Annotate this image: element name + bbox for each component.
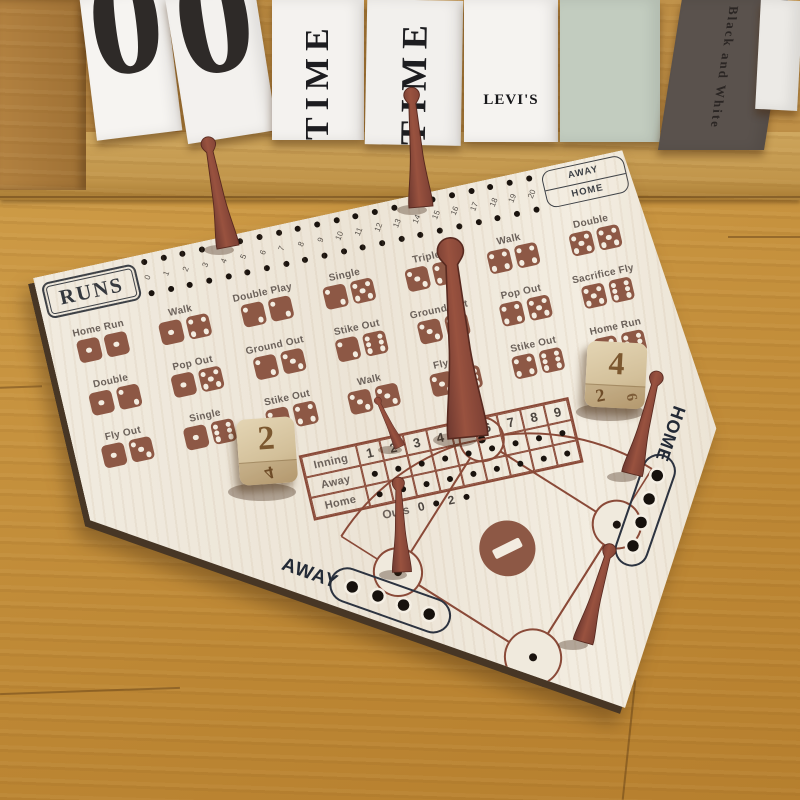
baseball-dice-board: AWAY HOME RUNS 0 1 2 3 4 5 — [33, 142, 786, 800]
die-icon — [103, 331, 131, 358]
die-icon — [373, 382, 401, 409]
die-icon — [416, 318, 444, 345]
die-icon — [321, 283, 349, 310]
die-icon — [197, 365, 225, 392]
die-icon — [607, 276, 635, 303]
die-top-face: 4 — [586, 340, 648, 386]
score-card-digit: 0 — [165, 0, 273, 116]
die-icon — [75, 337, 103, 364]
die-icon — [510, 353, 538, 380]
die-icon — [182, 424, 210, 451]
die-icon — [185, 313, 213, 340]
wood-post — [0, 0, 86, 190]
die-icon — [361, 330, 389, 357]
book-white-partial — [755, 0, 800, 111]
die-icon — [127, 436, 155, 463]
die-icon — [239, 301, 267, 328]
die-icon — [346, 388, 374, 415]
die-icon — [349, 277, 377, 304]
die-icon — [100, 442, 128, 469]
die-icon — [403, 265, 431, 292]
score-card-digit: 0 — [80, 0, 179, 113]
outs-number: 2 — [446, 493, 456, 508]
die-front-face: 4 — [262, 462, 275, 484]
die-icon — [580, 282, 608, 309]
die-side-face: 6 — [621, 392, 639, 403]
book-spine-title: Black and White — [703, 6, 742, 150]
plank-seam — [728, 236, 800, 238]
die-icon — [279, 348, 307, 375]
die-icon — [115, 383, 143, 410]
book-spine-title: TIME — [299, 4, 337, 140]
photo-scene: 0 0 TIME TIME LEVI'S Black and White — [0, 0, 800, 800]
die-icon — [88, 389, 116, 416]
book-green — [560, 0, 660, 142]
die-icon — [157, 319, 185, 346]
score-card: 0 — [80, 0, 183, 141]
die-icon — [267, 295, 295, 322]
die-front-face: 2 — [594, 385, 607, 407]
die-icon — [334, 336, 362, 363]
home-track-label: HOME — [652, 403, 690, 464]
home-inning-hole[interactable] — [553, 440, 581, 466]
book-levis: LEVI'S — [464, 0, 558, 142]
die-top-face: 2 — [236, 416, 297, 463]
die-icon — [568, 230, 596, 257]
die-icon — [525, 294, 553, 321]
die-icon — [209, 418, 237, 445]
wooden-die-right[interactable]: 4 2 6 — [584, 340, 647, 409]
die-icon — [595, 224, 623, 251]
die-icon — [513, 242, 541, 269]
away-track-label: AWAY — [279, 554, 341, 593]
die-icon — [485, 248, 513, 275]
book-time-1: TIME — [272, 0, 364, 140]
game-board-wrap: AWAY HOME RUNS 0 1 2 3 4 5 — [33, 278, 673, 800]
die-icon — [170, 371, 198, 398]
outs-number: 0 — [416, 499, 426, 514]
outs-hole[interactable] — [463, 493, 470, 500]
die-icon — [291, 400, 319, 427]
book-spine-title: LEVI'S — [464, 92, 558, 109]
die-icon — [538, 347, 566, 374]
wooden-die-left[interactable]: 2 4 — [236, 416, 298, 486]
outs-hole[interactable] — [433, 500, 440, 507]
die-icon — [252, 354, 280, 381]
die-icon — [498, 300, 526, 327]
